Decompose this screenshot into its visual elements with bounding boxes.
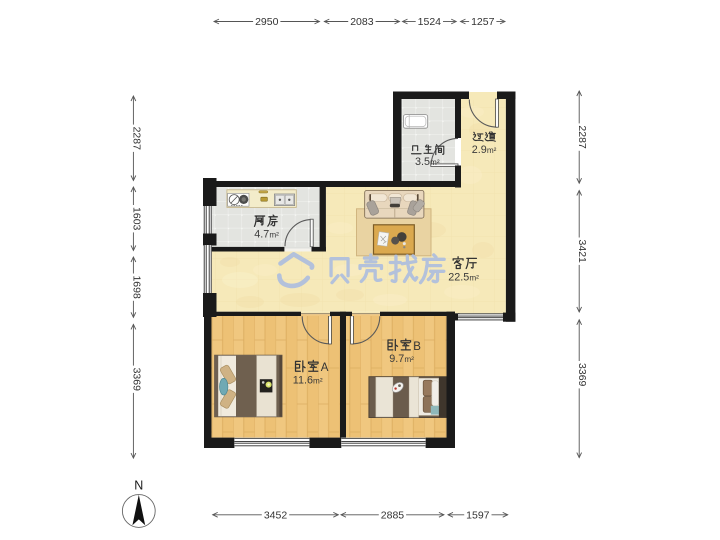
svg-text:11.6m²: 11.6m²	[293, 374, 323, 386]
svg-text:1524: 1524	[418, 16, 442, 28]
svg-text:9.7m²: 9.7m²	[389, 353, 414, 365]
svg-text:2885: 2885	[381, 510, 405, 522]
svg-text:3369: 3369	[130, 368, 142, 392]
svg-text:4.7m²: 4.7m²	[254, 229, 279, 241]
svg-text:22.5m²: 22.5m²	[448, 272, 479, 284]
svg-text:2287: 2287	[576, 125, 588, 149]
svg-text:2083: 2083	[350, 16, 374, 28]
svg-text:3421: 3421	[576, 240, 588, 264]
svg-text:2287: 2287	[130, 127, 142, 151]
svg-text:3369: 3369	[576, 363, 588, 387]
svg-text:1597: 1597	[466, 510, 490, 522]
svg-text:3452: 3452	[264, 510, 288, 522]
svg-text:1257: 1257	[471, 16, 495, 28]
svg-text:1603: 1603	[130, 207, 142, 231]
svg-text:B: B	[413, 341, 421, 353]
svg-text:3.5m²: 3.5m²	[415, 156, 440, 168]
svg-text:A: A	[321, 362, 329, 374]
svg-text:N: N	[134, 479, 143, 493]
svg-text:1698: 1698	[130, 275, 142, 299]
svg-text:2950: 2950	[255, 16, 279, 28]
svg-text:2.9m²: 2.9m²	[472, 144, 497, 156]
